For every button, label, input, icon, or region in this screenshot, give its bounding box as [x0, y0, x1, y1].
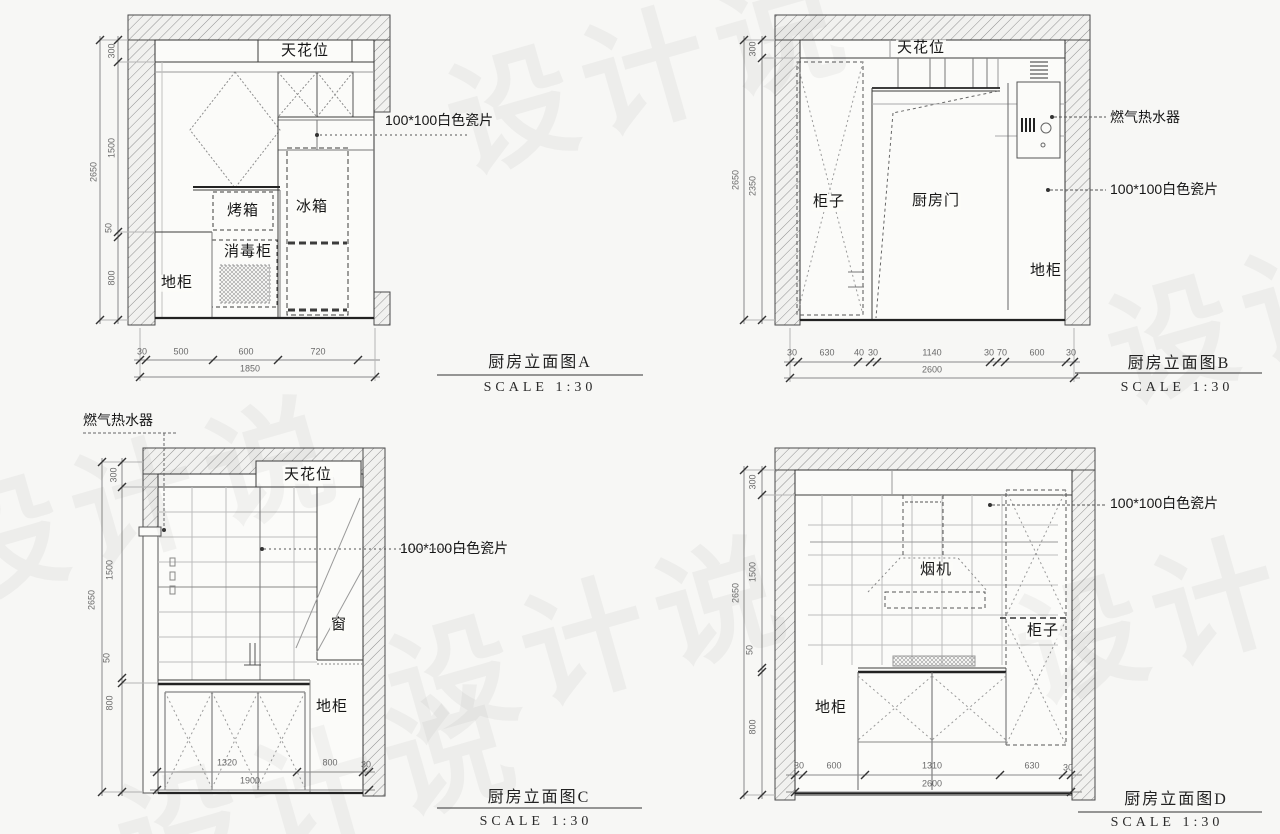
dim-d-bottom-3: 630 [1024, 762, 1039, 771]
note-heater-c: 燃气热水器 [83, 413, 153, 428]
dim-c-left-total: 2650 [88, 590, 97, 610]
dim-a-bottom-1: 500 [173, 348, 188, 357]
dim-d-bottom-total: 2600 [922, 780, 942, 789]
dim-d-left-2: 50 [746, 645, 755, 655]
label-hood-d: 烟机 [919, 562, 953, 579]
dim-c-bottom-total: 1900 [240, 777, 260, 786]
dim-b-bottom-4: 1140 [922, 349, 941, 358]
dim-d-left-0: 300 [749, 474, 758, 489]
dim-b-bottom-6: 70 [997, 349, 1007, 358]
label-ceiling-b: 天花位 [896, 40, 946, 57]
dim-d-left-total: 2650 [732, 583, 741, 603]
dim-b-left-total: 2650 [732, 170, 741, 190]
dim-a-left-3: 800 [108, 270, 117, 285]
dim-c-left-3: 800 [106, 695, 115, 710]
dim-b-bottom-8: 30 [1066, 349, 1076, 358]
dim-a-left-1: 1500 [108, 138, 117, 158]
dim-a-bottom-3: 720 [310, 348, 325, 357]
note-tile-a: 100*100白色瓷片 [385, 113, 493, 128]
dim-b-bottom-total: 2600 [922, 366, 942, 375]
dim-b-bottom-0: 30 [787, 349, 797, 358]
dim-a-bottom-2: 600 [238, 348, 253, 357]
label-base-cabinet-c: 地柜 [315, 699, 349, 716]
dim-b-bottom-1: 630 [819, 349, 834, 358]
elevation-linework [0, 0, 1280, 834]
dim-b-left-0: 300 [749, 41, 758, 56]
dim-b-bottom-2: 40 [854, 349, 864, 358]
label-sterilizer-a: 消毒柜 [223, 244, 273, 261]
label-window-c: 窗 [330, 617, 348, 634]
scale-c: SCALE 1:30 [480, 814, 593, 830]
label-door-b: 厨房门 [911, 193, 961, 210]
dim-b-bottom-7: 600 [1029, 349, 1044, 358]
dim-c-bottom-2: 30 [361, 761, 371, 770]
title-c: 厨房立面图C [488, 783, 591, 807]
note-tile-b: 100*100白色瓷片 [1110, 182, 1218, 197]
label-cabinet-d: 柜子 [1026, 623, 1060, 640]
dim-d-bottom-1: 600 [826, 762, 841, 771]
note-tile-c: 100*100白色瓷片 [400, 541, 508, 556]
scale-b: SCALE 1:30 [1121, 380, 1234, 396]
dim-c-left-2: 50 [103, 653, 112, 663]
dim-b-left-1: 2350 [749, 176, 758, 196]
label-ceiling-c: 天花位 [283, 467, 333, 484]
dim-c-bottom-0: 1320 [217, 759, 237, 768]
dim-c-bottom-1: 800 [322, 759, 337, 768]
dim-a-left-total: 2650 [90, 162, 99, 182]
dim-b-bottom-3: 30 [868, 349, 878, 358]
title-a: 厨房立面图A [488, 348, 592, 372]
dim-b-bottom-5: 30 [984, 349, 994, 358]
dim-d-left-1: 1500 [749, 562, 758, 582]
dim-c-left-0: 300 [110, 467, 119, 482]
label-base-cabinet-d: 地柜 [814, 700, 848, 717]
elevation-c-walls [139, 448, 385, 796]
dim-c-left-1: 1500 [106, 560, 115, 580]
scale-d: SCALE 1:30 [1111, 815, 1224, 831]
dim-d-bottom-4: 30 [1063, 764, 1073, 773]
dim-a-left-2: 50 [105, 223, 114, 233]
dim-d-left-3: 800 [749, 719, 758, 734]
scale-a: SCALE 1:30 [484, 380, 597, 396]
label-base-cabinet-b: 地柜 [1029, 263, 1063, 280]
title-d: 厨房立面图D [1124, 785, 1228, 809]
dim-a-bottom-total: 1850 [240, 365, 260, 374]
dim-a-bottom-0: 30 [137, 348, 147, 357]
dim-a-left-0: 300 [108, 43, 117, 58]
label-oven-a: 烤箱 [226, 203, 260, 220]
cad-sheet: 设计说 设计说 设计说 设计说 设计说 设计说 [0, 0, 1280, 834]
note-heater-b: 燃气热水器 [1110, 110, 1180, 125]
dim-d-bottom-0: 30 [794, 762, 804, 771]
dim-d-bottom-2: 1310 [922, 762, 942, 771]
label-base-cabinet-a: 地柜 [160, 275, 194, 292]
note-tile-d: 100*100白色瓷片 [1110, 496, 1218, 511]
label-ceiling-a: 天花位 [280, 43, 330, 60]
title-b: 厨房立面图B [1128, 349, 1231, 373]
label-cabinet-b: 柜子 [812, 194, 846, 211]
label-fridge-a: 冰箱 [295, 199, 329, 216]
